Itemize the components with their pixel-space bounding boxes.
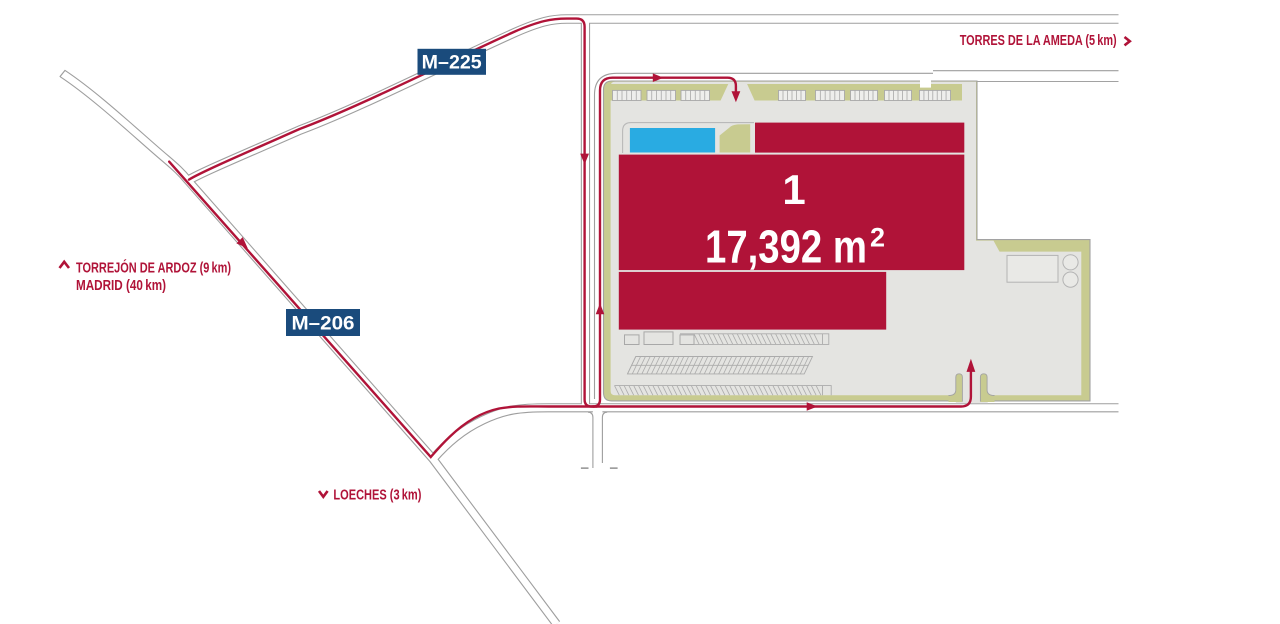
svg-text:M–225: M–225 — [422, 52, 482, 74]
svg-text:M–206: M–206 — [292, 313, 355, 335]
svg-text:1: 1 — [782, 166, 805, 213]
svg-text:17,392 m: 17,392 m — [705, 221, 867, 273]
svg-text:TORRES DE LA AMEDA (5 km): TORRES DE LA AMEDA (5 km) — [960, 33, 1117, 49]
svg-text:2: 2 — [870, 223, 885, 253]
svg-text:LOECHES (3 km): LOECHES (3 km) — [333, 487, 421, 503]
svg-text:TORREJÓN DE ARDOZ (9 km): TORREJÓN DE ARDOZ (9 km) — [76, 259, 231, 277]
svg-text:MADRID (40 km): MADRID (40 km) — [76, 278, 166, 294]
